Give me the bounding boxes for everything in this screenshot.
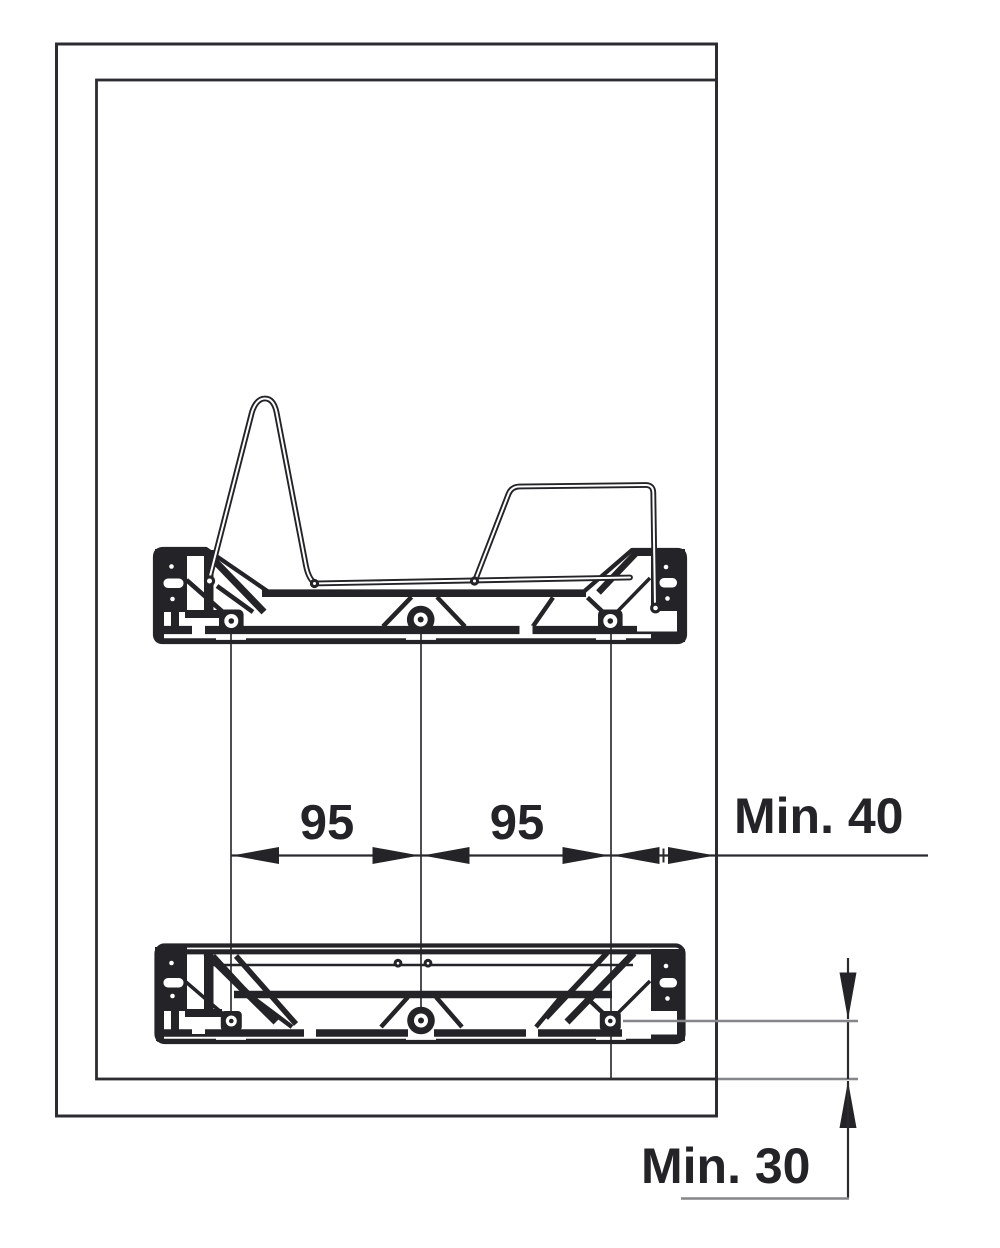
- svg-text:Min. 30: Min. 30: [641, 1138, 810, 1194]
- svg-text:Min. 40: Min. 40: [734, 788, 903, 844]
- svg-text:95: 95: [300, 796, 355, 850]
- svg-text:95: 95: [490, 796, 545, 850]
